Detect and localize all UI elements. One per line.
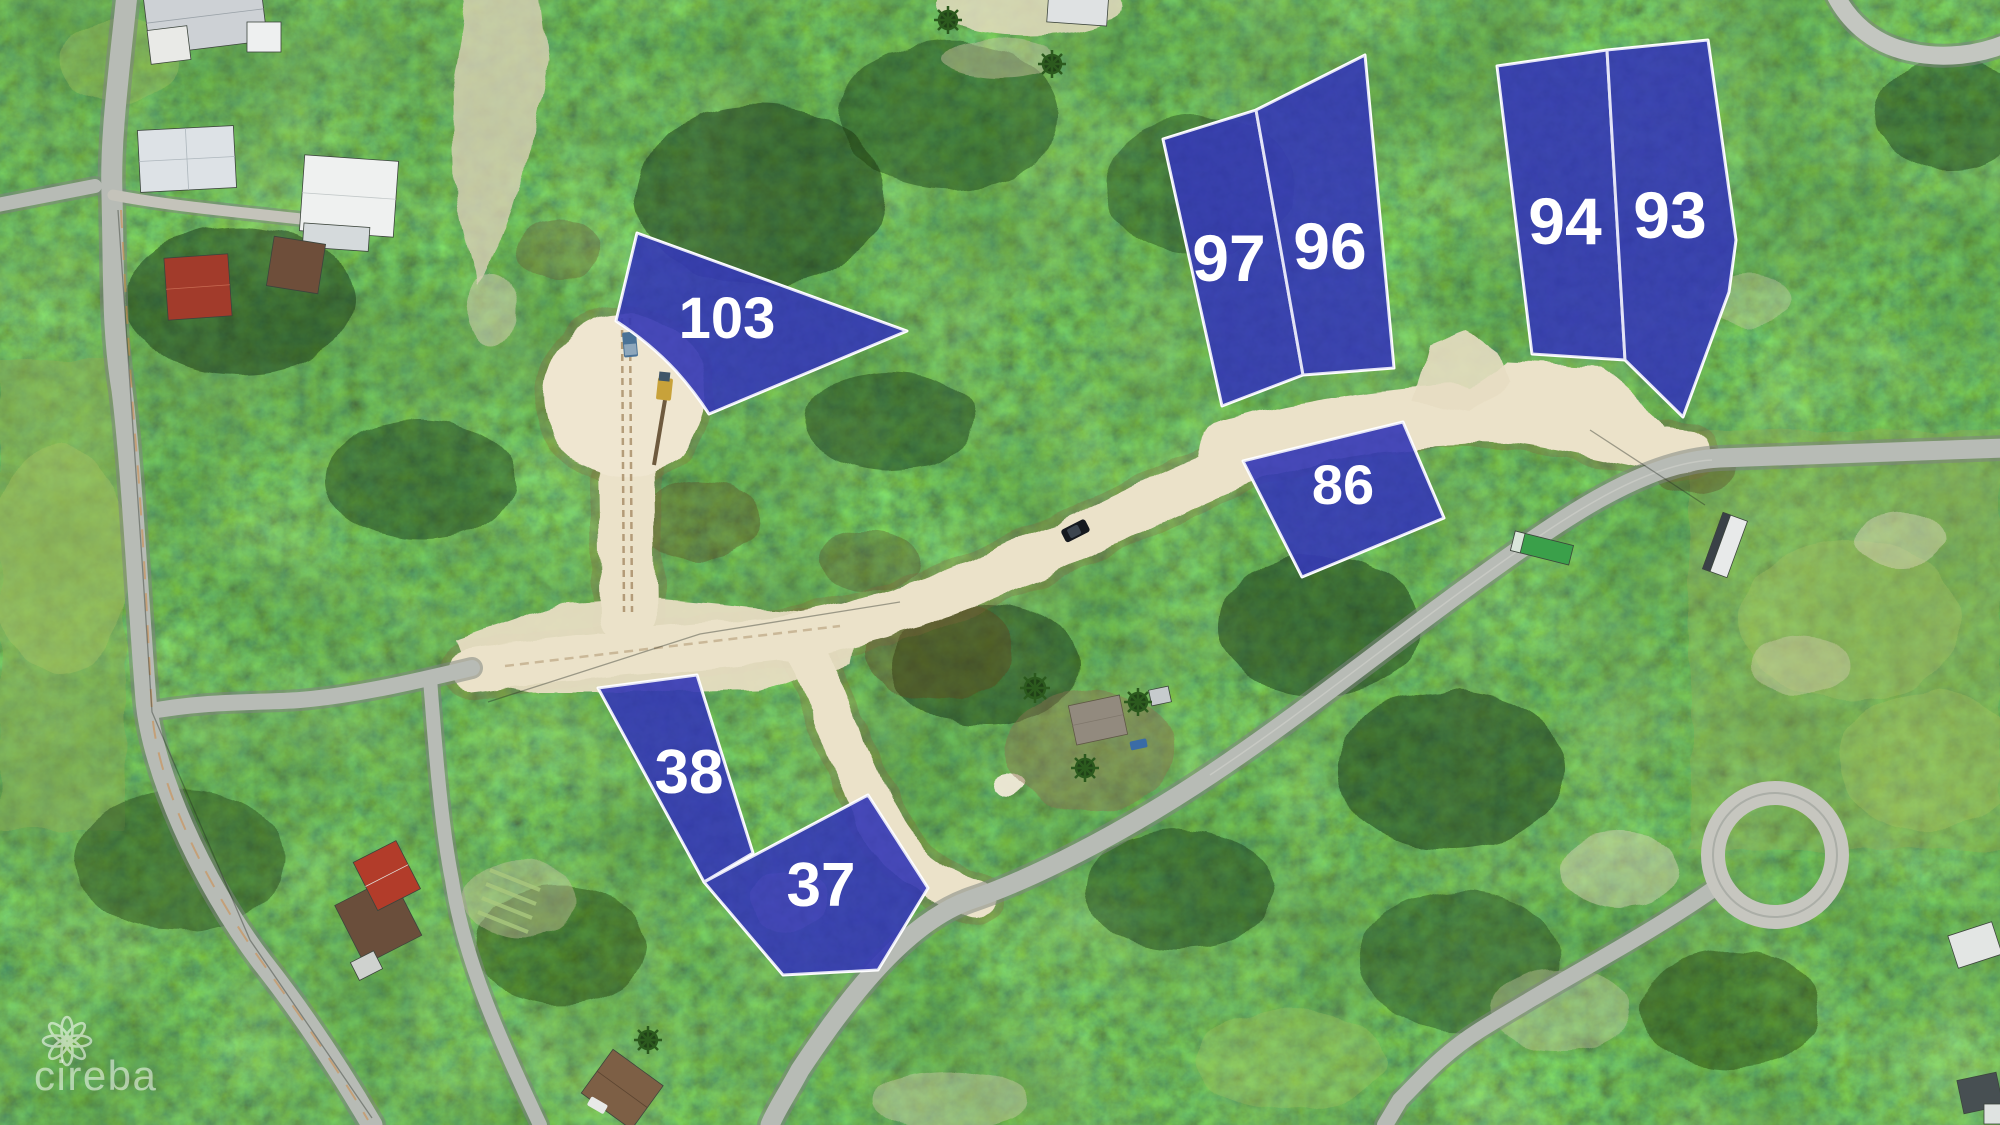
watermark-brand-text: cireba: [34, 1052, 157, 1099]
lot-label-86: 86: [1312, 453, 1374, 516]
lot-label-96: 96: [1293, 209, 1366, 283]
aerial-lot-map: 103 97 96 94 93 86 38 37 cireba: [0, 0, 2000, 1125]
lot-label-37: 37: [787, 851, 856, 920]
lot-label-93: 93: [1633, 178, 1706, 252]
lot-label-94: 94: [1528, 184, 1602, 258]
lot-label-103: 103: [679, 286, 776, 351]
aerial-photo-canvas: 103 97 96 94 93 86 38 37 cireba: [0, 0, 2000, 1125]
lot-label-38: 38: [655, 738, 724, 807]
lot-label-97: 97: [1192, 221, 1265, 295]
